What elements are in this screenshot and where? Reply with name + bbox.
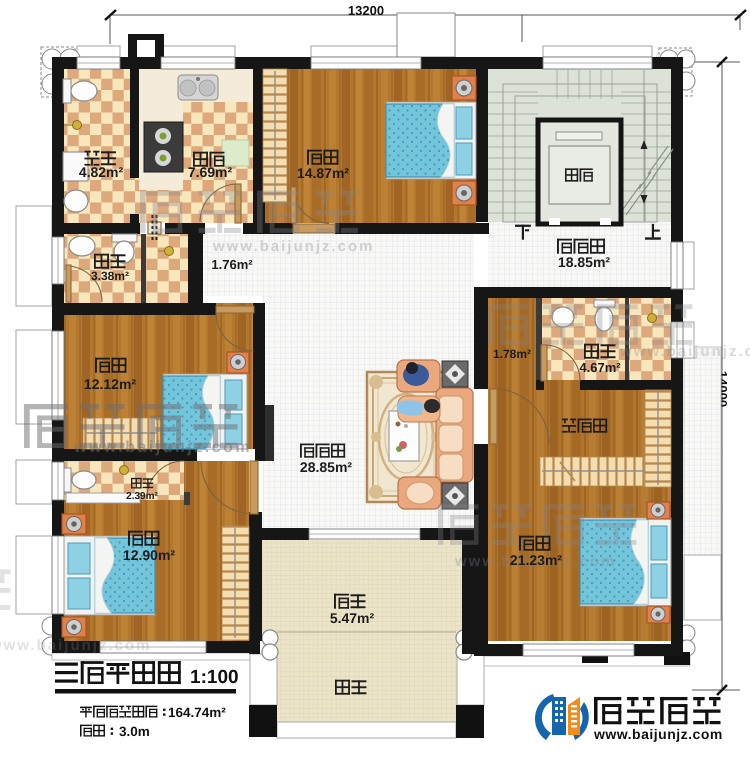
svg-text:4.67m²: 4.67m² bbox=[579, 360, 621, 375]
svg-text:2.39m²: 2.39m² bbox=[126, 491, 158, 502]
svg-text:1.76m²: 1.76m² bbox=[211, 257, 253, 272]
svg-text:5.47m²: 5.47m² bbox=[330, 610, 375, 626]
svg-text:14.87m²: 14.87m² bbox=[297, 165, 349, 181]
svg-text:3.0m: 3.0m bbox=[119, 724, 150, 739]
svg-text:1:100: 1:100 bbox=[190, 667, 239, 688]
svg-text:4.82m²: 4.82m² bbox=[79, 164, 124, 180]
svg-text:3.38m²: 3.38m² bbox=[91, 269, 129, 283]
svg-text:1.78m²: 1.78m² bbox=[493, 347, 531, 361]
svg-text:28.85m²: 28.85m² bbox=[300, 459, 352, 475]
svg-text:13200: 13200 bbox=[348, 3, 384, 18]
svg-text:www.baijunjz.com: www.baijunjz.com bbox=[0, 637, 151, 654]
svg-text:21.23m²: 21.23m² bbox=[510, 552, 562, 568]
svg-text:164.74m²: 164.74m² bbox=[168, 705, 226, 720]
svg-text:www.baijunjz.com: www.baijunjz.com bbox=[593, 726, 723, 742]
svg-text:12.12m²: 12.12m² bbox=[84, 376, 136, 392]
svg-text:18.85m²: 18.85m² bbox=[558, 254, 610, 270]
svg-text:www.baijunjz.com: www.baijunjz.com bbox=[212, 238, 374, 255]
svg-text:12.90m²: 12.90m² bbox=[123, 547, 175, 563]
svg-text:www.baijunjz.com: www.baijunjz.com bbox=[619, 343, 750, 360]
